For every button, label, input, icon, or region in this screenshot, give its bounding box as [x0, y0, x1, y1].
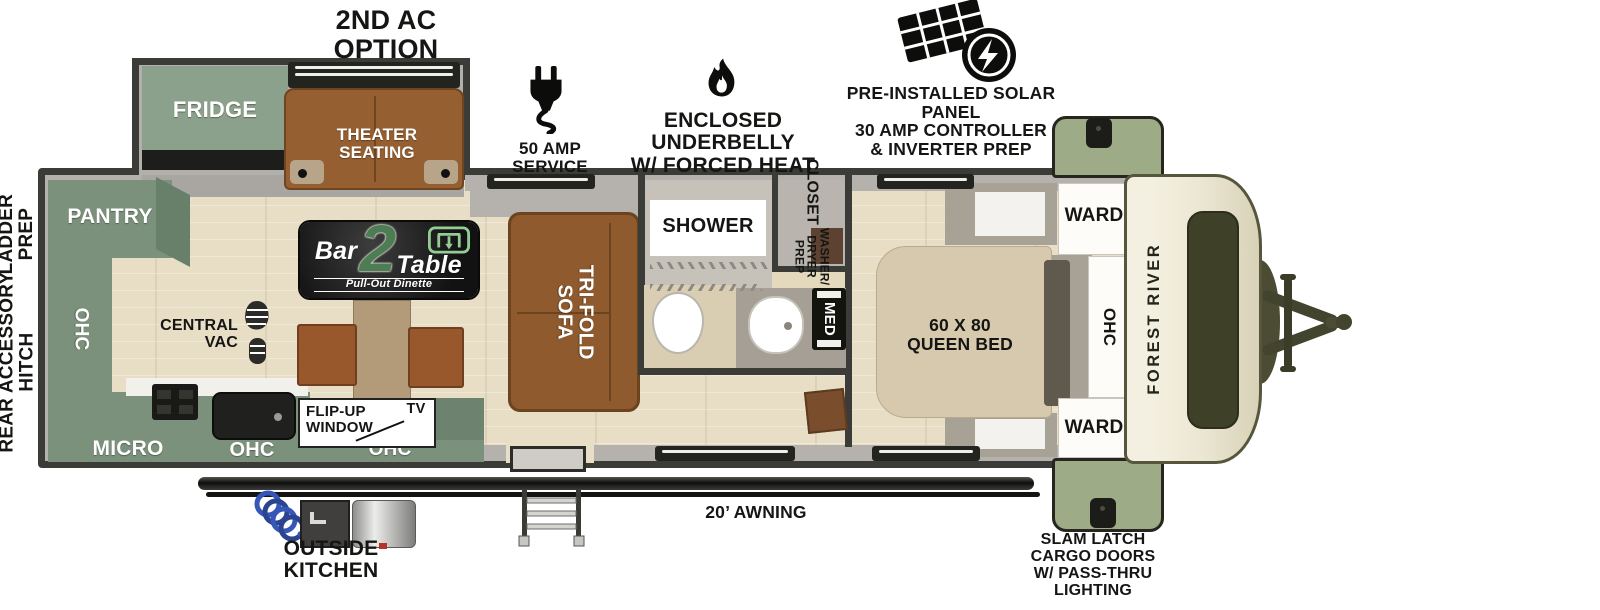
- solar-prep-label: PRE-INSTALLED SOLAR PANEL 30 AMP CONTROL…: [816, 84, 1086, 158]
- enclosed-underbelly-label: ENCLOSED UNDERBELLY W/ FORCED HEAT: [592, 110, 854, 177]
- kitchen-ohc-left-label: OHC: [70, 308, 90, 351]
- micro-label: MICRO: [58, 438, 198, 460]
- bathroom-wall-bottom: [638, 368, 852, 375]
- dinette-chair-right: [408, 327, 464, 388]
- shower-curtain-bottom: [650, 284, 762, 291]
- logo-table-text: Table: [388, 252, 470, 279]
- tri-fold-sofa-label: TRI-FOLD SOFA: [553, 265, 595, 360]
- awning-rail-main: [198, 477, 1034, 490]
- window-bedroom-top: [877, 174, 974, 189]
- flip-up-window-label: FLIP-UP WINDOW: [306, 404, 398, 436]
- cooktop: [152, 384, 198, 420]
- forest-river-brand: FOREST RIVER: [1146, 243, 1163, 395]
- floorplan-canvas: LADDER PREP REAR ACCESSORY HITCH 2ND AC …: [0, 0, 1600, 610]
- outside-kitchen-label: OUTSIDE KITCHEN: [256, 538, 406, 583]
- entry-threshold: [510, 446, 586, 472]
- brand-labelbox: FOREST RIVER: [1132, 200, 1178, 438]
- logo-dinette-icon: [426, 226, 472, 254]
- front-cap-window: [1187, 211, 1239, 429]
- kitchen-ohc-mid-label: OHC: [198, 440, 306, 461]
- forced-heat-flame-icon: [702, 56, 742, 108]
- bathroom-sink: [748, 296, 804, 354]
- tv-label: TV: [402, 402, 430, 417]
- closet-sub-label: WASHER/ DRYER PREP: [792, 228, 830, 285]
- med-label: MED: [821, 302, 837, 336]
- wardrobe-top-label: WARD: [1058, 206, 1130, 226]
- tri-fold-sofa-labelbox: TRI-FOLD SOFA: [508, 212, 640, 412]
- queen-bed-label: 60 X 80 QUEEN BED: [880, 316, 1040, 353]
- dinette-chair-left: [297, 324, 357, 386]
- kitchen-ohc-left-labelbox: OHC: [48, 256, 112, 402]
- window-bottom-1: [655, 446, 795, 461]
- cargo-door-bottom-handle: [1090, 498, 1116, 528]
- rear-hitch-annotation: REAR ACCESSORY HITCH: [0, 286, 36, 438]
- fridge-counter: [142, 150, 288, 170]
- window-bedroom-bottom: [872, 446, 980, 461]
- window-top-1: [487, 174, 595, 189]
- entry-steps: [514, 490, 590, 548]
- med-labelbox: MED: [806, 288, 852, 350]
- bedroom-ohc-label: OHC: [1100, 308, 1118, 346]
- shower-curtain-top: [650, 262, 768, 269]
- ladder-prep-label: LADDER PREP: [0, 194, 37, 274]
- bedroom-door: [804, 388, 848, 434]
- solar-panel-icon: [896, 0, 1020, 84]
- rear-accessory-hitch-label: REAR ACCESSORY HITCH: [0, 272, 37, 453]
- fridge-label: FRIDGE: [146, 98, 284, 121]
- kitchen-sink: [212, 392, 296, 440]
- bed-headboard: [1044, 260, 1070, 406]
- wardrobe-bottom-label: WARD: [1058, 418, 1130, 438]
- power-plug-icon: [524, 66, 568, 134]
- bed-shelf-top: [945, 183, 1057, 245]
- awning-label: 20’ AWNING: [682, 503, 830, 522]
- closet-labelbox: CLOSET WASHER/ DRYER PREP: [766, 172, 856, 272]
- slideout-window: [288, 62, 460, 88]
- flip-up-window-callout: FLIP-UP WINDOW TV: [298, 398, 436, 448]
- bar2table-logo: Bar 2 Table Pull-Out Dinette: [300, 222, 478, 298]
- logo-subtitle: Pull-Out Dinette: [314, 279, 464, 291]
- theater-seating-label: THEATER SEATING: [312, 126, 442, 162]
- pantry-label: PANTRY: [52, 206, 168, 228]
- central-vac-footprint-icon: [242, 300, 272, 366]
- second-ac-option-label: 2ND AC OPTION: [296, 6, 476, 63]
- cargo-door-top-handle: [1086, 118, 1112, 148]
- central-vac-label: CENTRAL VAC: [128, 318, 238, 352]
- shower-label: SHOWER: [650, 216, 766, 237]
- awning-rail-thin: [206, 492, 1040, 497]
- slam-latch-label: SLAM LATCH CARGO DOORS W/ PASS-THRU LIGH…: [996, 532, 1190, 600]
